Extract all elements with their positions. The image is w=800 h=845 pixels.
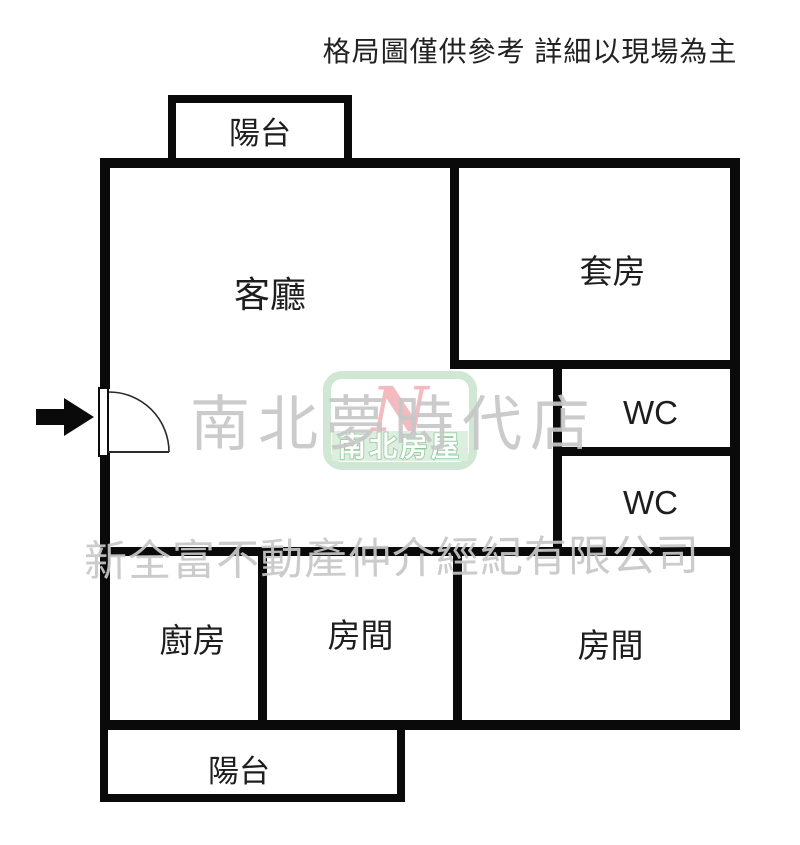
- room-label-kitchen: 廚房: [125, 614, 260, 662]
- wall-outer-left-lower: [100, 452, 110, 730]
- room-label-wc2: WC: [608, 484, 693, 522]
- wall-balcony-top-left: [168, 95, 176, 158]
- room-label-suite: 套房: [545, 245, 680, 293]
- wall-suite-bottom: [450, 360, 740, 369]
- brand-logo: N 南北房屋: [323, 371, 477, 470]
- wall-balcony-top-top: [168, 95, 352, 103]
- door-swing-icon: [96, 385, 176, 460]
- wall-balcony-bottom-right: [397, 730, 405, 802]
- room-label-balcony-top: 陽台: [176, 108, 344, 153]
- wall-balcony-bottom-bottom: [100, 794, 405, 802]
- wall-room-room: [453, 553, 462, 723]
- wall-balcony-bottom-left: [100, 730, 108, 802]
- wall-living-suite: [450, 166, 459, 366]
- wall-outer-left-upper: [100, 158, 110, 389]
- room-label-balcony-bottom: 陽台: [155, 746, 323, 791]
- room-label-living: 客廳: [170, 266, 370, 318]
- logo-brand-text: 南北房屋: [338, 430, 462, 462]
- wall-balcony-top-right: [344, 95, 352, 158]
- room-label-room-mid: 房間: [293, 609, 428, 657]
- wall-wc-left: [553, 366, 562, 553]
- wall-outer-bottom: [100, 720, 740, 730]
- wall-outer-right: [730, 158, 740, 730]
- entrance-arrow-icon: [34, 394, 96, 440]
- room-label-wc1: WC: [608, 394, 693, 432]
- wall-middle: [103, 547, 738, 556]
- wall-outer-top: [100, 158, 740, 168]
- wall-wc-divider: [558, 447, 738, 456]
- floorplan-canvas: 格局圖僅供參考 詳細以現場為主 N 南北房屋 南北夢時代店 新全富不動產仲介經紀: [0, 0, 800, 845]
- room-label-room-right: 房間: [543, 619, 678, 667]
- disclaimer-text: 格局圖僅供參考 詳細以現場為主: [300, 30, 760, 70]
